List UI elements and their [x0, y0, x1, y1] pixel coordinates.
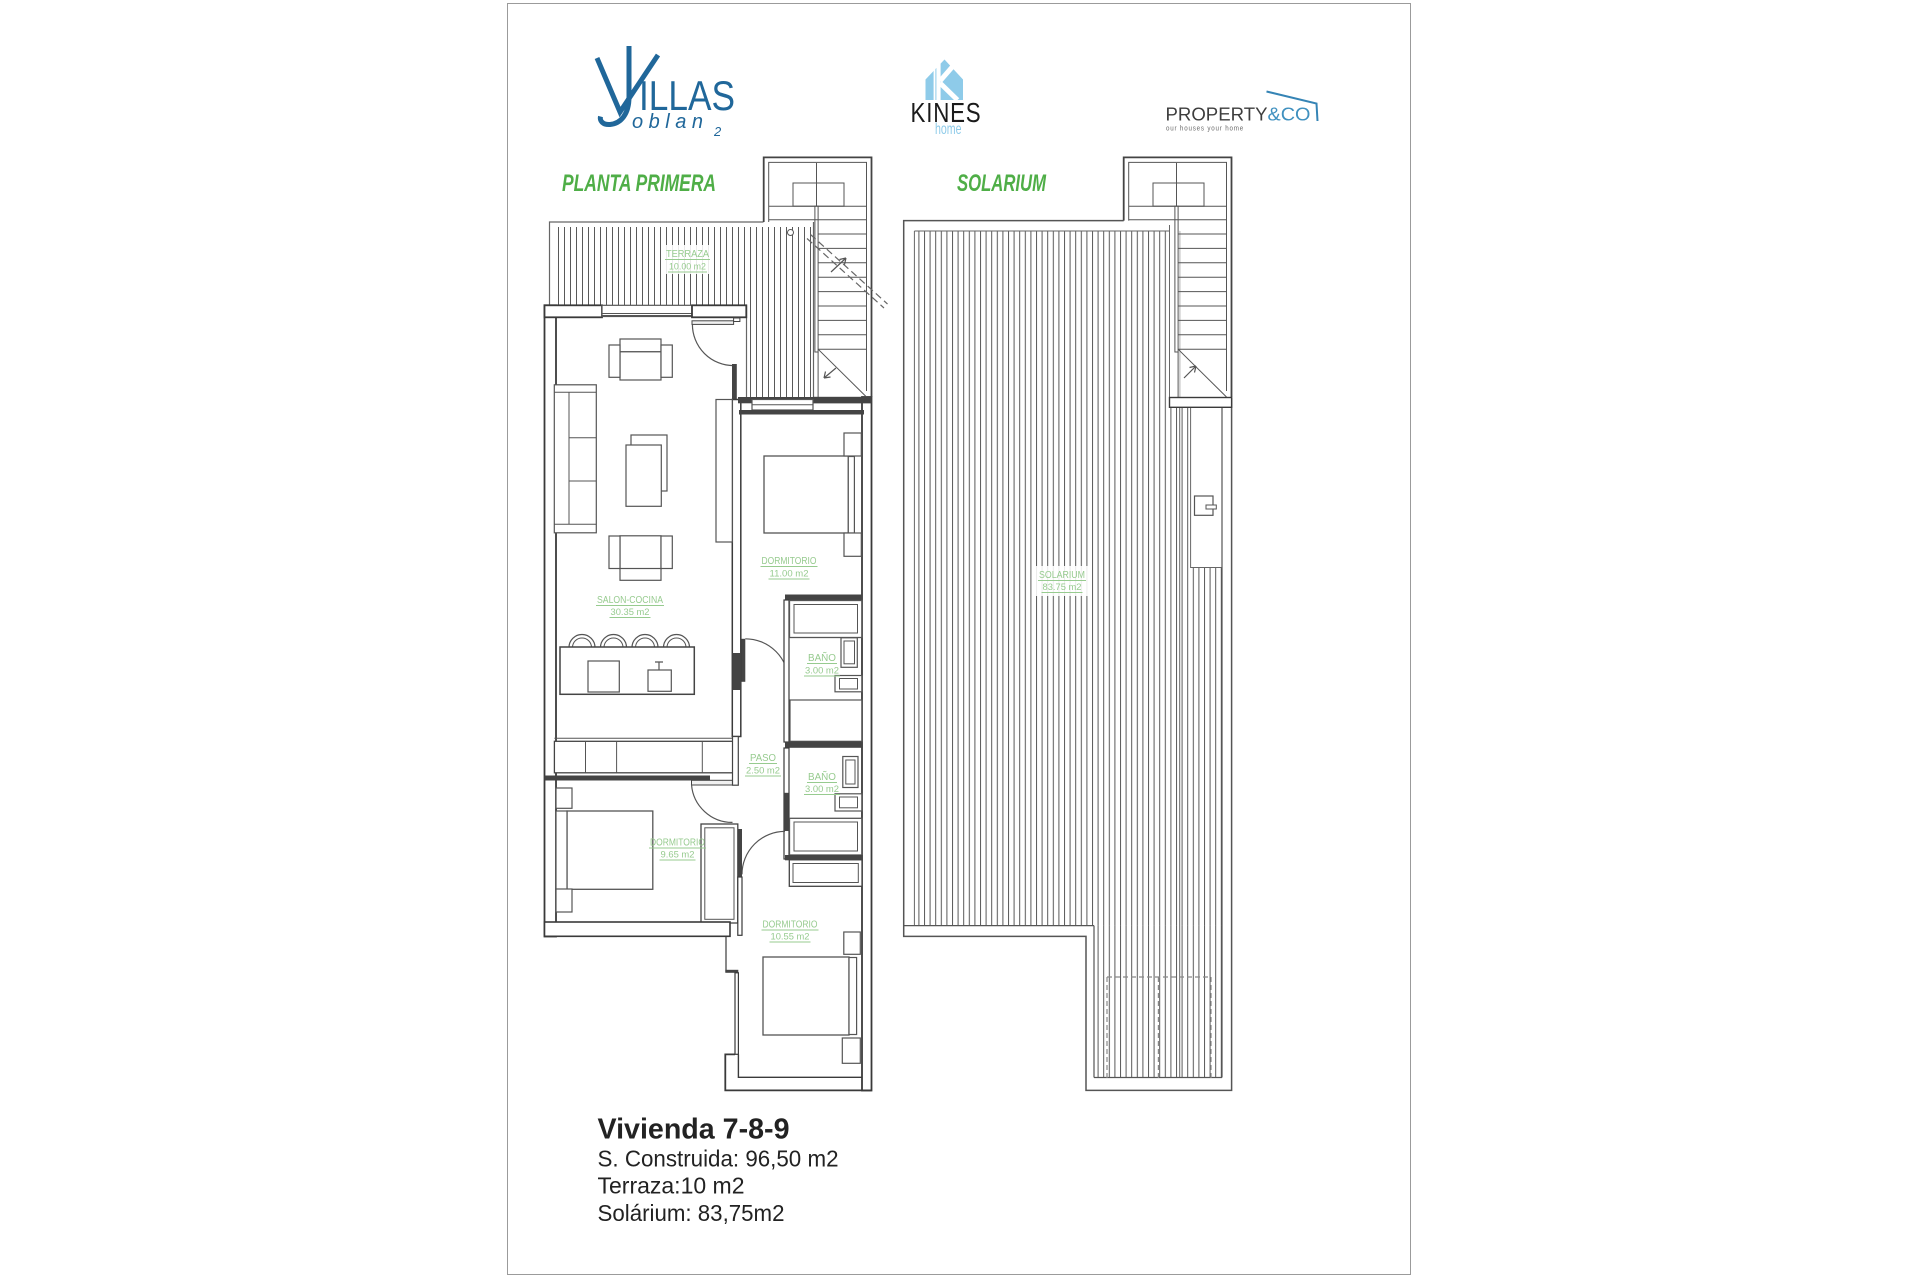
svg-text:10.00 m2: 10.00 m2	[669, 262, 706, 273]
svg-text:TERRAZA: TERRAZA	[666, 249, 709, 260]
svg-text:SOLARIUM: SOLARIUM	[957, 170, 1047, 197]
svg-text:83.75 m2: 83.75 m2	[1043, 582, 1082, 593]
svg-text:BAÑO: BAÑO	[808, 770, 836, 783]
svg-text:DORMITORIO: DORMITORIO	[650, 838, 705, 849]
svg-text:30.35 m2: 30.35 m2	[611, 607, 650, 618]
svg-text:3.00 m2: 3.00 m2	[805, 666, 839, 677]
svg-text:11.00 m2: 11.00 m2	[770, 569, 809, 580]
svg-text:Solárium: 83,75m2: Solárium: 83,75m2	[598, 1200, 785, 1226]
svg-text:home: home	[935, 121, 962, 138]
svg-text:10.55 m2: 10.55 m2	[771, 932, 810, 943]
svg-text:3.00 m2: 3.00 m2	[805, 784, 839, 795]
svg-text:PASO: PASO	[750, 753, 776, 764]
svg-text:PROPERTY: PROPERTY	[1166, 104, 1268, 125]
svg-text:Terraza:10 m2: Terraza:10 m2	[598, 1173, 745, 1199]
svg-text:9.65 m2: 9.65 m2	[661, 850, 695, 861]
svg-text:S. Construida: 96,50 m2: S. Construida: 96,50 m2	[598, 1146, 839, 1172]
svg-text:2.50 m2: 2.50 m2	[746, 766, 780, 777]
svg-text:Vivienda 7-8-9: Vivienda 7-8-9	[598, 1114, 790, 1146]
svg-text:2: 2	[713, 124, 722, 139]
svg-text:our houses your home: our houses your home	[1166, 126, 1244, 133]
svg-text:SOLARIUM: SOLARIUM	[1039, 570, 1085, 581]
svg-text:PLANTA PRIMERA: PLANTA PRIMERA	[562, 170, 716, 197]
svg-text:oblan: oblan	[632, 111, 709, 133]
svg-text:&CO: &CO	[1268, 104, 1311, 125]
svg-text:DORMITORIO: DORMITORIO	[762, 556, 817, 567]
svg-text:SALON-COCINA: SALON-COCINA	[597, 595, 663, 606]
svg-text:BAÑO: BAÑO	[808, 651, 836, 664]
svg-text:DORMITORIO: DORMITORIO	[763, 920, 818, 931]
